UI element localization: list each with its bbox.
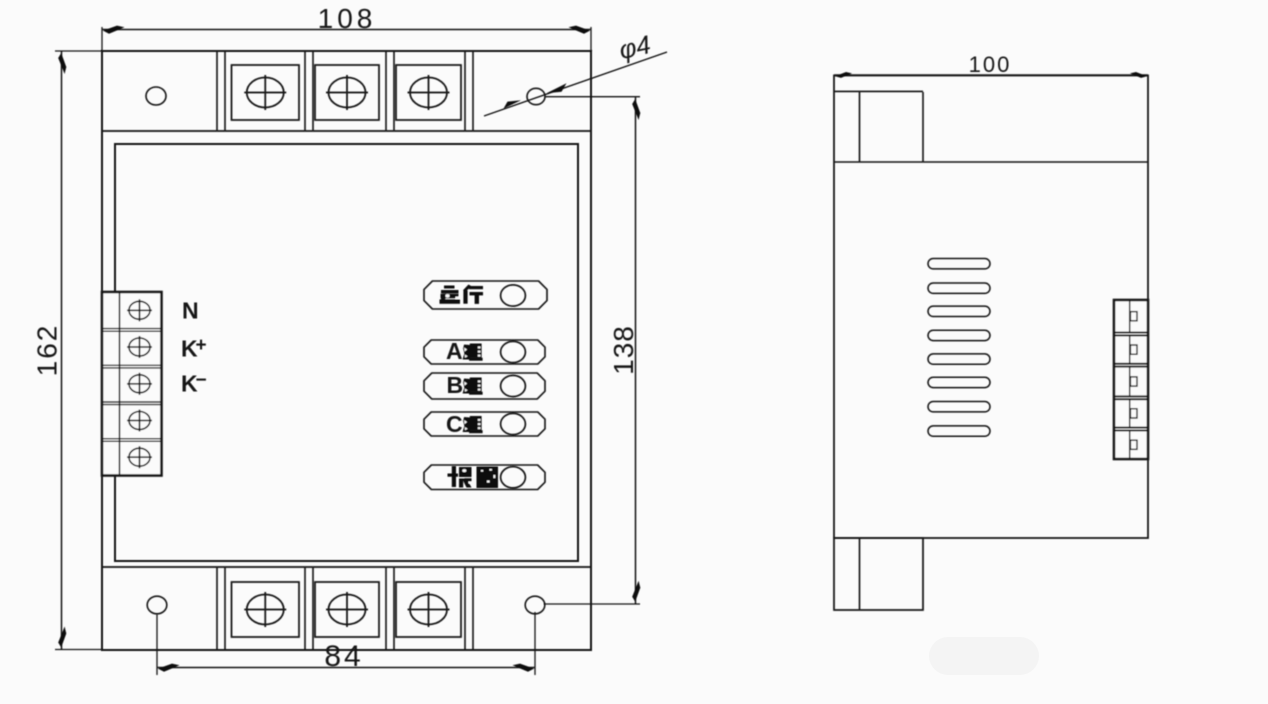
svg-text:100: 100 (969, 52, 1012, 77)
svg-text:84: 84 (324, 640, 363, 673)
svg-text:+: + (196, 335, 207, 356)
svg-text:162: 162 (32, 324, 63, 377)
svg-text:B: B (447, 372, 464, 398)
svg-text:A: A (446, 338, 463, 364)
svg-text:C: C (446, 411, 463, 437)
svg-text:N: N (182, 298, 199, 324)
svg-text:−: − (196, 370, 207, 391)
svg-text:φ4: φ4 (616, 29, 653, 65)
svg-text:108: 108 (318, 3, 377, 34)
svg-text:138: 138 (608, 325, 639, 375)
